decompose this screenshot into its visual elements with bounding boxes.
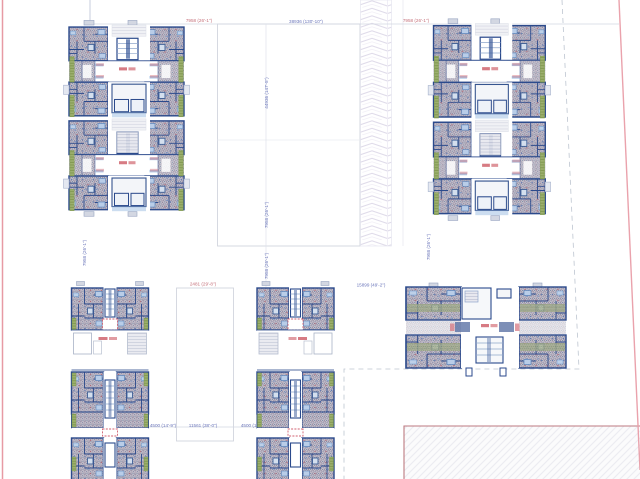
svg-text:7958 (26'-1"): 7958 (26'-1") bbox=[426, 233, 431, 260]
svg-text:2481 (29'-8"): 2481 (29'-8") bbox=[190, 282, 217, 287]
svg-text:7958 (26'-1"): 7958 (26'-1") bbox=[186, 18, 213, 23]
svg-text:7958 (26'-1"): 7958 (26'-1") bbox=[403, 18, 430, 23]
svg-text:44936 (147'-5"): 44936 (147'-5") bbox=[264, 77, 269, 109]
svg-text:11561 (38'-0"): 11561 (38'-0") bbox=[189, 423, 218, 428]
svg-text:7958 (26'-1"): 7958 (26'-1") bbox=[82, 239, 87, 266]
svg-text:7958 (26'-1"): 7958 (26'-1") bbox=[264, 201, 269, 228]
svg-text:15899 (49'-2"): 15899 (49'-2") bbox=[357, 283, 386, 288]
svg-text:4500 (14'-9"): 4500 (14'-9") bbox=[150, 423, 177, 428]
svg-text:38936 (130'-10"): 38936 (130'-10") bbox=[289, 19, 323, 24]
svg-text:7958 (26'-1"): 7958 (26'-1") bbox=[264, 252, 269, 279]
